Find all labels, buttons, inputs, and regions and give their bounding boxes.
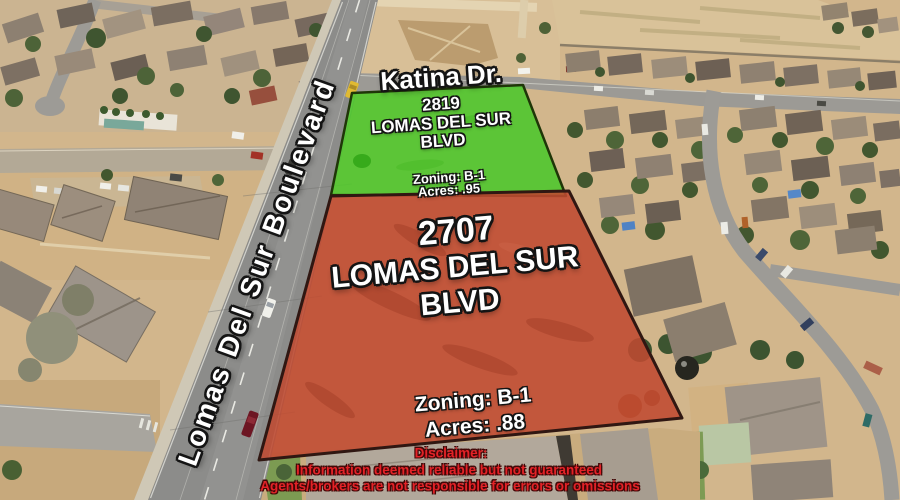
disclaimer-line2: Agents/brokers are not responsible for e… [260,479,640,493]
green-shed-roof [699,422,752,465]
parcel-2707-address-number: 2707 [417,211,495,251]
blue-tarp [622,221,636,231]
water-tank [675,356,699,380]
parcel-2707-address-suffix: BLVD [419,285,501,322]
aerial-listing-image: Lomas Del Sur Boulevard Katina Dr. 2819 … [0,0,900,500]
blue-tarp-2 [788,189,802,199]
parcel-2819-address-number: 2819 [422,94,461,114]
disclaimer-title: Disclaimer: [415,446,488,460]
disclaimer-line1: Information deemed reliable but not guar… [296,463,602,477]
parcel-2819-address-suffix: BLVD [420,131,466,151]
